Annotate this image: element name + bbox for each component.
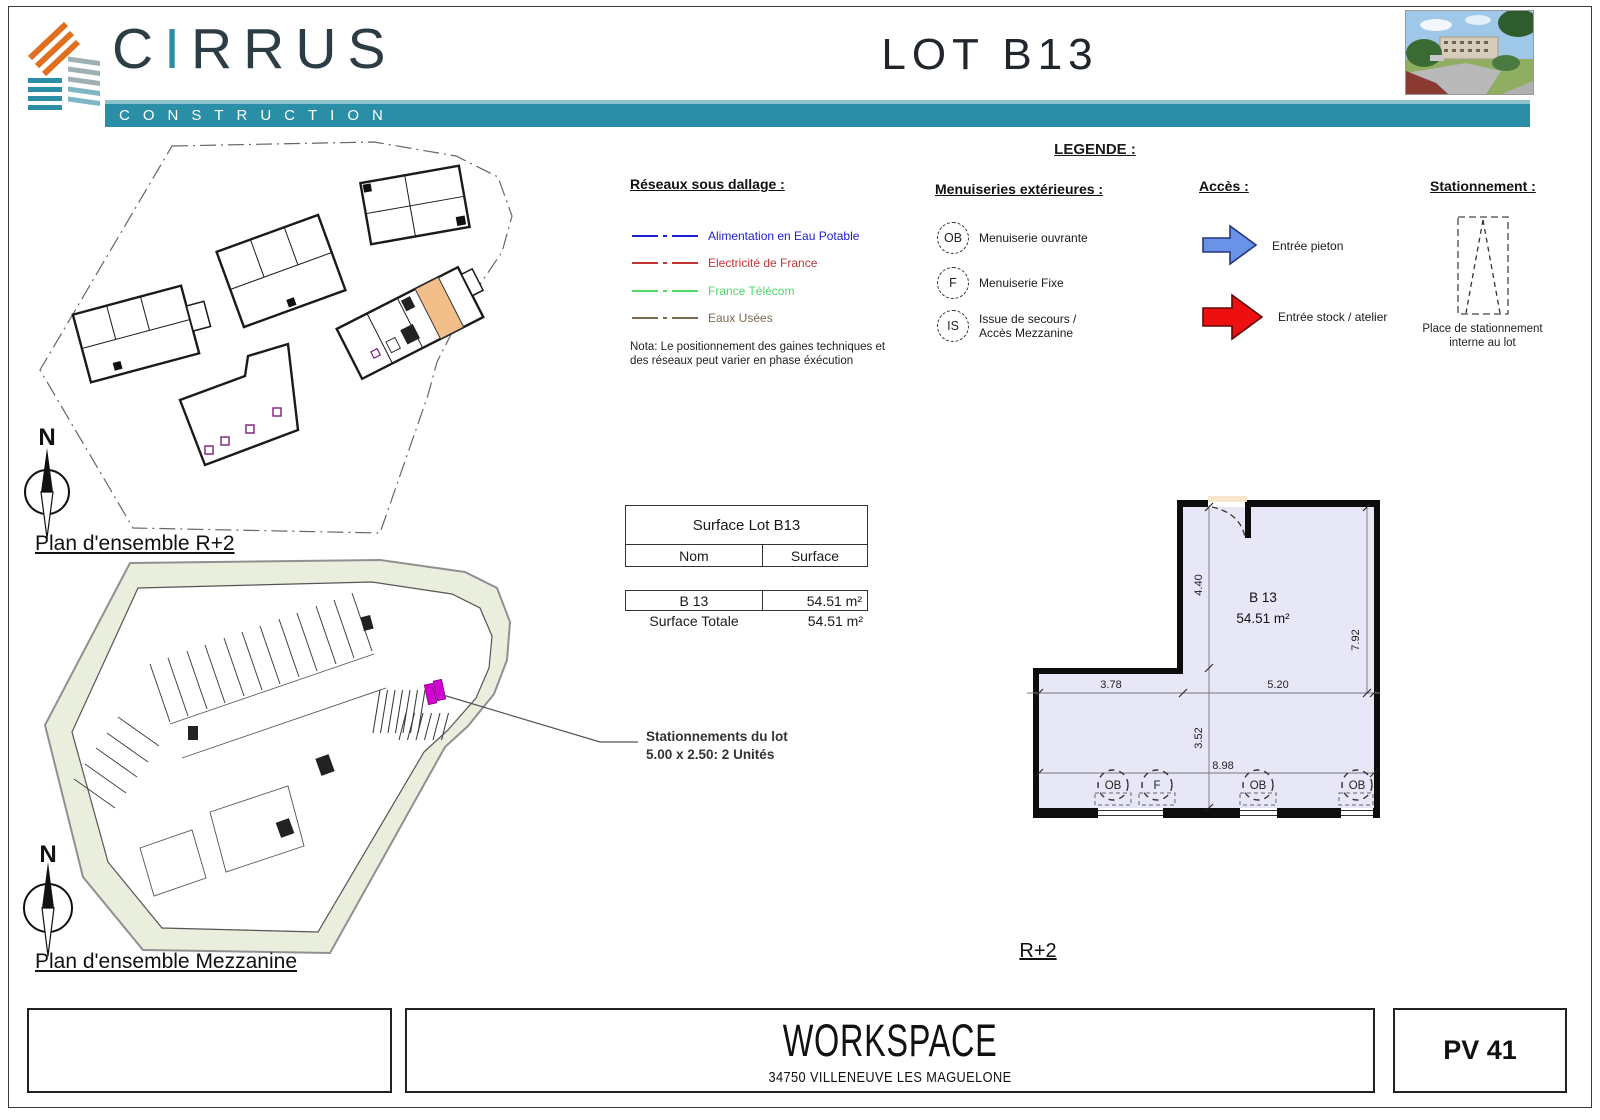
nota-line1: Nota: Le positionnement des gaines techn… <box>630 340 890 354</box>
opening-ob-2: OB <box>1250 780 1267 792</box>
cell-unit-surface: 54.51 m² <box>763 591 867 610</box>
room-area <box>1039 507 1374 808</box>
brand-subtitle: CONSTRUCTION <box>119 107 1530 124</box>
opening-symbol-f: F <box>937 267 969 299</box>
dim-8-98: 8.98 <box>1212 760 1233 772</box>
surface-table-header-row: Nom Surface <box>625 545 868 567</box>
plan-mezzanine-label: Plan d'ensemble Mezzanine <box>35 950 297 974</box>
project-address: 34750 VILLENEUVE LES MAGUELONE <box>768 1069 1011 1086</box>
unit-area: 54.51 m² <box>1236 611 1290 626</box>
legend-item-f: F Menuiserie Fixe <box>937 267 1064 299</box>
opening-symbol-is: IS <box>937 310 969 342</box>
network-line-symbol <box>632 235 698 237</box>
is-label-line1: Issue de secours / <box>979 312 1076 326</box>
site-photo <box>1405 10 1534 95</box>
network-line-symbol <box>632 317 698 319</box>
legend-item-label: Electricité de France <box>708 256 817 270</box>
legend-reseaux-heading: Réseaux sous dallage : <box>630 176 785 192</box>
legend-item-eau-potable: Alimentation en Eau Potable <box>632 229 859 243</box>
surface-table-total-row: Surface Totale 54.51 m² <box>625 611 868 631</box>
opening-ob-1: OB <box>1105 780 1122 792</box>
sheet-title: LOT B13 <box>790 30 1190 80</box>
title-block-sheet-number: PV 41 <box>1393 1008 1567 1093</box>
legend-title: LEGENDE : <box>1035 141 1155 158</box>
title-block-project: WORKSPACE 34750 VILLENEUVE LES MAGUELONE <box>405 1008 1375 1093</box>
cirrus-logo-icon <box>22 12 108 112</box>
sheet-code: PV 41 <box>1443 1035 1517 1066</box>
is-label-line2: Accès Mezzanine <box>979 326 1073 340</box>
legend-item-edf: Electricité de France <box>632 256 817 270</box>
legend-item-label: Entrée stock / atelier <box>1278 310 1387 324</box>
brand-banner: CONSTRUCTION <box>105 100 1530 127</box>
parking-note: Stationnements du lot 5.00 x 2.50: 2 Uni… <box>646 728 788 764</box>
total-value: 54.51 m² <box>763 611 868 631</box>
legend-item-label: Eaux Usées <box>708 311 773 325</box>
detail-floor-label: R+2 <box>1008 940 1068 963</box>
brand-name: CIRRUS <box>112 16 397 82</box>
total-label: Surface Totale <box>625 611 763 631</box>
dim-3-52: 3.52 <box>1193 727 1205 748</box>
legend-item-entree-stock: Entrée stock / atelier <box>1202 293 1387 341</box>
network-line-symbol <box>632 290 698 292</box>
opening-ob-3: OB <box>1349 780 1366 792</box>
surface-table-title: Surface Lot B13 <box>625 505 868 545</box>
legend-menuiseries-heading: Menuiseries extérieures : <box>935 181 1103 197</box>
blue-arrow-icon <box>1202 224 1258 267</box>
col-header-nom: Nom <box>626 545 763 566</box>
stationnement-caption: Place de stationnement interne au lot <box>1415 322 1550 350</box>
nota-line2: des réseaux peut varier en phase éxécuti… <box>630 354 890 368</box>
surface-table: Surface Lot B13 Nom Surface B 13 54.51 m… <box>625 505 868 631</box>
compass-north-mezzanine: N <box>24 841 72 956</box>
lot-b13-detail-plan: 4.40 3.52 7.92 3.78 5.20 8.98 B 13 54.51… <box>1005 480 1395 825</box>
red-arrow-icon <box>1202 293 1264 341</box>
surface-table-row-b13: B 13 54.51 m² <box>625 590 868 611</box>
legend-item-label: Entrée pieton <box>1272 239 1343 253</box>
caption-line1: Place de stationnement <box>1415 322 1550 336</box>
dim-4-40: 4.40 <box>1193 574 1205 595</box>
drawing-sheet: CIRRUS CONSTRUCTION LOT B13 LEGENDE : Ré… <box>0 0 1600 1120</box>
legend-item-ob: OB Menuiserie ouvrante <box>937 222 1088 254</box>
legend-item-label: Alimentation en Eau Potable <box>708 229 859 243</box>
parking-space-symbol <box>1455 214 1511 318</box>
legend-item-label: Menuiserie Fixe <box>979 276 1064 290</box>
legend-item-label: France Télécom <box>708 284 794 298</box>
opening-f: F <box>1153 780 1160 792</box>
parking-note-line2: 5.00 x 2.50: 2 Unités <box>646 746 788 764</box>
compass-north-r2: N <box>25 424 69 538</box>
legend-stationnement-heading: Stationnement : <box>1430 178 1536 194</box>
unit-label: B 13 <box>1249 590 1277 605</box>
legend-item-entree-pieton: Entrée pieton <box>1202 224 1343 267</box>
col-header-surface: Surface <box>763 545 867 566</box>
dim-7-92: 7.92 <box>1350 629 1362 650</box>
project-name: WORKSPACE <box>783 1015 998 1067</box>
plan-ensemble-mezzanine: N <box>20 550 660 970</box>
parking-note-line1: Stationnements du lot <box>646 728 788 746</box>
legend-item-label: Issue de secours / Accès Mezzanine <box>979 312 1076 340</box>
svg-text:N: N <box>38 424 55 451</box>
plan-ensemble-r2: N <box>20 140 520 560</box>
legend-item-label: Menuiserie ouvrante <box>979 231 1088 245</box>
legend-item-eaux-usees: Eaux Usées <box>632 311 773 325</box>
dim-5-20: 5.20 <box>1267 679 1288 691</box>
opening-symbol-ob: OB <box>937 222 969 254</box>
legend-item-telecom: France Télécom <box>632 284 794 298</box>
title-block-empty-box <box>27 1008 392 1093</box>
legend-item-is: IS Issue de secours / Accès Mezzanine <box>937 310 1076 342</box>
dim-3-78: 3.78 <box>1100 679 1121 691</box>
legend-nota: Nota: Le positionnement des gaines techn… <box>630 340 890 368</box>
legend-acces-heading: Accès : <box>1199 178 1249 194</box>
caption-line2: interne au lot <box>1415 336 1550 350</box>
cell-unit-name: B 13 <box>626 591 763 610</box>
network-line-symbol <box>632 262 698 264</box>
